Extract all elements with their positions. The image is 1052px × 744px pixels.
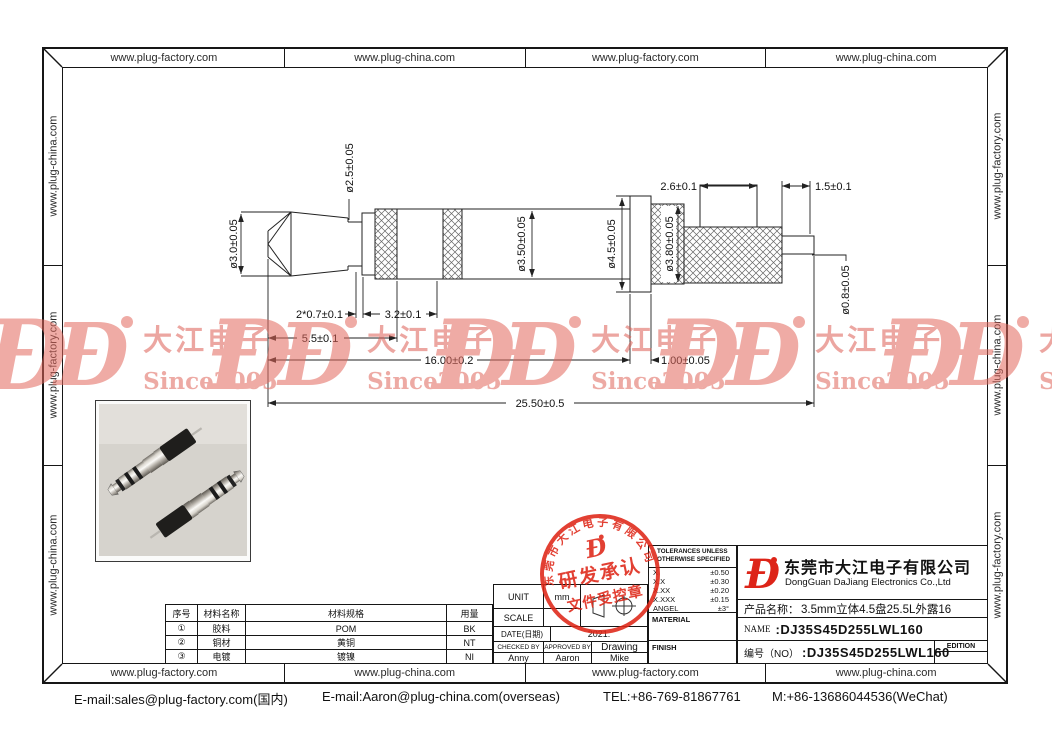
approval-stamp: 东莞市大江电子有限公司 Ð 研发承认 文件受控章 bbox=[534, 508, 666, 640]
checked-by-label: CHECKED BY bbox=[494, 642, 544, 653]
company-name-en: DongGuan DaJiang Electronics Co.,Ltd bbox=[785, 577, 951, 588]
url-cell: www.plug-china.com bbox=[766, 664, 1006, 682]
material-spec: POM bbox=[246, 622, 447, 635]
email-overseas: E-mail:Aaron@plug-china.com(overseas) bbox=[322, 689, 560, 704]
header-cell: 材料规格 bbox=[246, 605, 447, 621]
url-text: www.plug-factory.com bbox=[47, 312, 59, 419]
tolerance-title-line2: OTHERWISE SPECIFIED bbox=[657, 556, 736, 564]
part-number-row: 编号（NO） :DJ35S45D255LWL160 EDITION bbox=[738, 641, 987, 663]
table-row: ③ 电镀 镀镍 NI bbox=[166, 650, 492, 663]
url-text: www.plug-china.com bbox=[836, 667, 937, 679]
svg-text:Ð: Ð bbox=[582, 531, 610, 564]
dim-pin-len: 1.5±0.1 bbox=[815, 181, 852, 193]
dim-flange-dia: ø4.5±0.05 bbox=[606, 219, 618, 268]
material-name: 电镀 bbox=[198, 650, 246, 663]
url-cell: www.plug-factory.com bbox=[44, 664, 285, 682]
header-cell: 用量 bbox=[447, 605, 492, 621]
table-row: ② 铜材 黄铜 NT bbox=[166, 636, 492, 650]
material-qty: NT bbox=[447, 636, 492, 649]
company-name-cn: 东莞市大江电子有限公司 bbox=[784, 554, 971, 578]
drawn-by-value: Mike bbox=[592, 653, 647, 663]
material-name: 胶料 bbox=[198, 622, 246, 635]
dim-rear-len: 2.6±0.1 bbox=[660, 181, 697, 193]
url-cell: www.plug-factory.com bbox=[44, 266, 62, 465]
table-row: ① 胶料 POM BK bbox=[166, 622, 492, 636]
url-cell: www.plug-china.com bbox=[44, 67, 62, 266]
material-qty: NI bbox=[447, 650, 492, 663]
title-block: Ð 东莞市大江电子有限公司 DongGuan DaJiang Electroni… bbox=[737, 545, 988, 664]
watermark-since-text: Since2005 bbox=[1039, 368, 1052, 395]
url-cell: www.plug-factory.com bbox=[526, 49, 767, 67]
row-number: ② bbox=[166, 636, 198, 649]
header-cell: 材料名称 bbox=[198, 605, 246, 621]
material-spec: 镀镍 bbox=[246, 650, 447, 663]
drawing-by-label: Drawing bbox=[592, 642, 647, 653]
url-cell: www.plug-china.com bbox=[766, 49, 1006, 67]
engineering-drawing-page: www.plug-factory.com www.plug-china.com … bbox=[0, 0, 1052, 744]
dim-len16: 16.00±0.2 bbox=[425, 355, 474, 367]
dim-tip-dia: ø3.0±0.05 bbox=[228, 219, 240, 268]
material-spec: 黄铜 bbox=[246, 636, 447, 649]
header-cell: 序号 bbox=[166, 605, 198, 621]
url-text: www.plug-china.com bbox=[836, 52, 937, 64]
approved-by-value: Aaron bbox=[544, 653, 592, 663]
product-name-row: 产品名称： 3.5mm立体4.5盘25.5L外露16 bbox=[738, 600, 987, 618]
tol-value: ±0.30 bbox=[710, 577, 729, 586]
edition-cell: EDITION bbox=[934, 641, 987, 663]
dim-tip-len: 5.5±0.1 bbox=[302, 333, 339, 345]
url-text: www.plug-factory.com bbox=[592, 667, 699, 679]
url-text: www.plug-factory.com bbox=[991, 113, 1003, 220]
material-name: 铜材 bbox=[198, 636, 246, 649]
email-domestic: E-mail:sales@plug-factory.com(国内) bbox=[74, 689, 288, 708]
product-photo bbox=[95, 400, 251, 562]
dim-barrel-dia: ø3.50±0.05 bbox=[516, 216, 528, 272]
url-text: www.plug-factory.com bbox=[110, 52, 217, 64]
tol-value: ±0.15 bbox=[710, 595, 729, 604]
dimension-lines bbox=[241, 181, 846, 407]
url-cell: www.plug-factory.com bbox=[988, 466, 1006, 664]
dim-flange-w: 1.00±0.05 bbox=[661, 355, 710, 367]
stamp-logo-icon: Ð bbox=[582, 531, 610, 564]
company-row: Ð 东莞市大江电子有限公司 DongGuan DaJiang Electroni… bbox=[738, 546, 987, 600]
name-value: :DJ35S45D255LWL160 bbox=[776, 622, 924, 637]
brand-logo-dot bbox=[1017, 316, 1029, 328]
material-table-header: 序号 材料名称 材料规格 用量 bbox=[166, 605, 492, 622]
dim-groove: 2*0.7±0.1 bbox=[296, 309, 343, 321]
tol-value: ±3° bbox=[718, 604, 729, 613]
plug-profile bbox=[268, 185, 814, 292]
url-cell: www.plug-factory.com bbox=[44, 49, 285, 67]
url-cell: www.plug-china.com bbox=[44, 466, 62, 664]
url-text: www.plug-factory.com bbox=[991, 511, 1003, 618]
bottom-url-band: www.plug-factory.com www.plug-china.com … bbox=[44, 664, 1006, 682]
top-url-band: www.plug-factory.com www.plug-china.com … bbox=[44, 49, 1006, 67]
product-photo-image bbox=[99, 404, 247, 556]
dim-pin-dia: ø0.8±0.05 bbox=[840, 265, 852, 314]
url-text: www.plug-china.com bbox=[47, 514, 59, 615]
approved-by-label: APPROVED BY bbox=[544, 642, 592, 653]
name-label: NAME bbox=[744, 624, 771, 634]
url-cell: www.plug-china.com bbox=[285, 664, 526, 682]
mobile-wechat: M:+86-13686044536(WeChat) bbox=[772, 689, 948, 704]
checked-by-value: Anny bbox=[494, 653, 544, 663]
dim-neck-dia: ø2.5±0.05 bbox=[344, 143, 356, 192]
row-number: ① bbox=[166, 622, 198, 635]
url-text: www.plug-china.com bbox=[354, 52, 455, 64]
finish-field-label: FINISH bbox=[649, 641, 736, 652]
url-text: www.plug-factory.com bbox=[110, 667, 217, 679]
material-table: 序号 材料名称 材料规格 用量 ① 胶料 POM BK ② 铜材 黄铜 NT ③… bbox=[165, 604, 493, 664]
left-url-band: www.plug-china.com www.plug-factory.com … bbox=[44, 67, 62, 664]
number-value: :DJ35S45D255LWL160 bbox=[802, 645, 950, 660]
url-cell: www.plug-factory.com bbox=[988, 67, 1006, 266]
material-qty: BK bbox=[447, 622, 492, 635]
url-text: www.plug-china.com bbox=[991, 315, 1003, 416]
number-label: 编号（NO） bbox=[744, 645, 799, 660]
right-url-band: www.plug-factory.com www.plug-china.com … bbox=[988, 67, 1006, 664]
tolerance-title-line1: TOLERANCES UNLESS bbox=[657, 548, 736, 556]
url-text: www.plug-china.com bbox=[47, 116, 59, 217]
url-cell: www.plug-china.com bbox=[285, 49, 526, 67]
tol-value: ±0.50 bbox=[710, 568, 729, 577]
url-cell: www.plug-factory.com bbox=[526, 664, 767, 682]
product-name-value: 3.5mm立体4.5盘25.5L外露16 bbox=[801, 601, 951, 617]
product-name-label: 产品名称： bbox=[744, 601, 799, 617]
part-name-row: NAME :DJ35S45D255LWL160 bbox=[738, 618, 987, 641]
edition-label: EDITION bbox=[935, 641, 987, 652]
dim-insulator: 3.2±0.1 bbox=[385, 309, 422, 321]
url-text: www.plug-factory.com bbox=[592, 52, 699, 64]
row-number: ③ bbox=[166, 650, 198, 663]
url-text: www.plug-china.com bbox=[354, 667, 455, 679]
tol-value: ±0.20 bbox=[710, 586, 729, 595]
telephone: TEL:+86-769-81867761 bbox=[603, 689, 741, 704]
watermark-brand-text: 大江电子 bbox=[1039, 317, 1052, 359]
company-logo-icon: Ð bbox=[744, 551, 780, 595]
dim-rear-dia: ø3.80±0.05 bbox=[664, 216, 676, 272]
url-cell: www.plug-china.com bbox=[988, 266, 1006, 465]
dim-total-len: 25.50±0.5 bbox=[516, 398, 565, 410]
